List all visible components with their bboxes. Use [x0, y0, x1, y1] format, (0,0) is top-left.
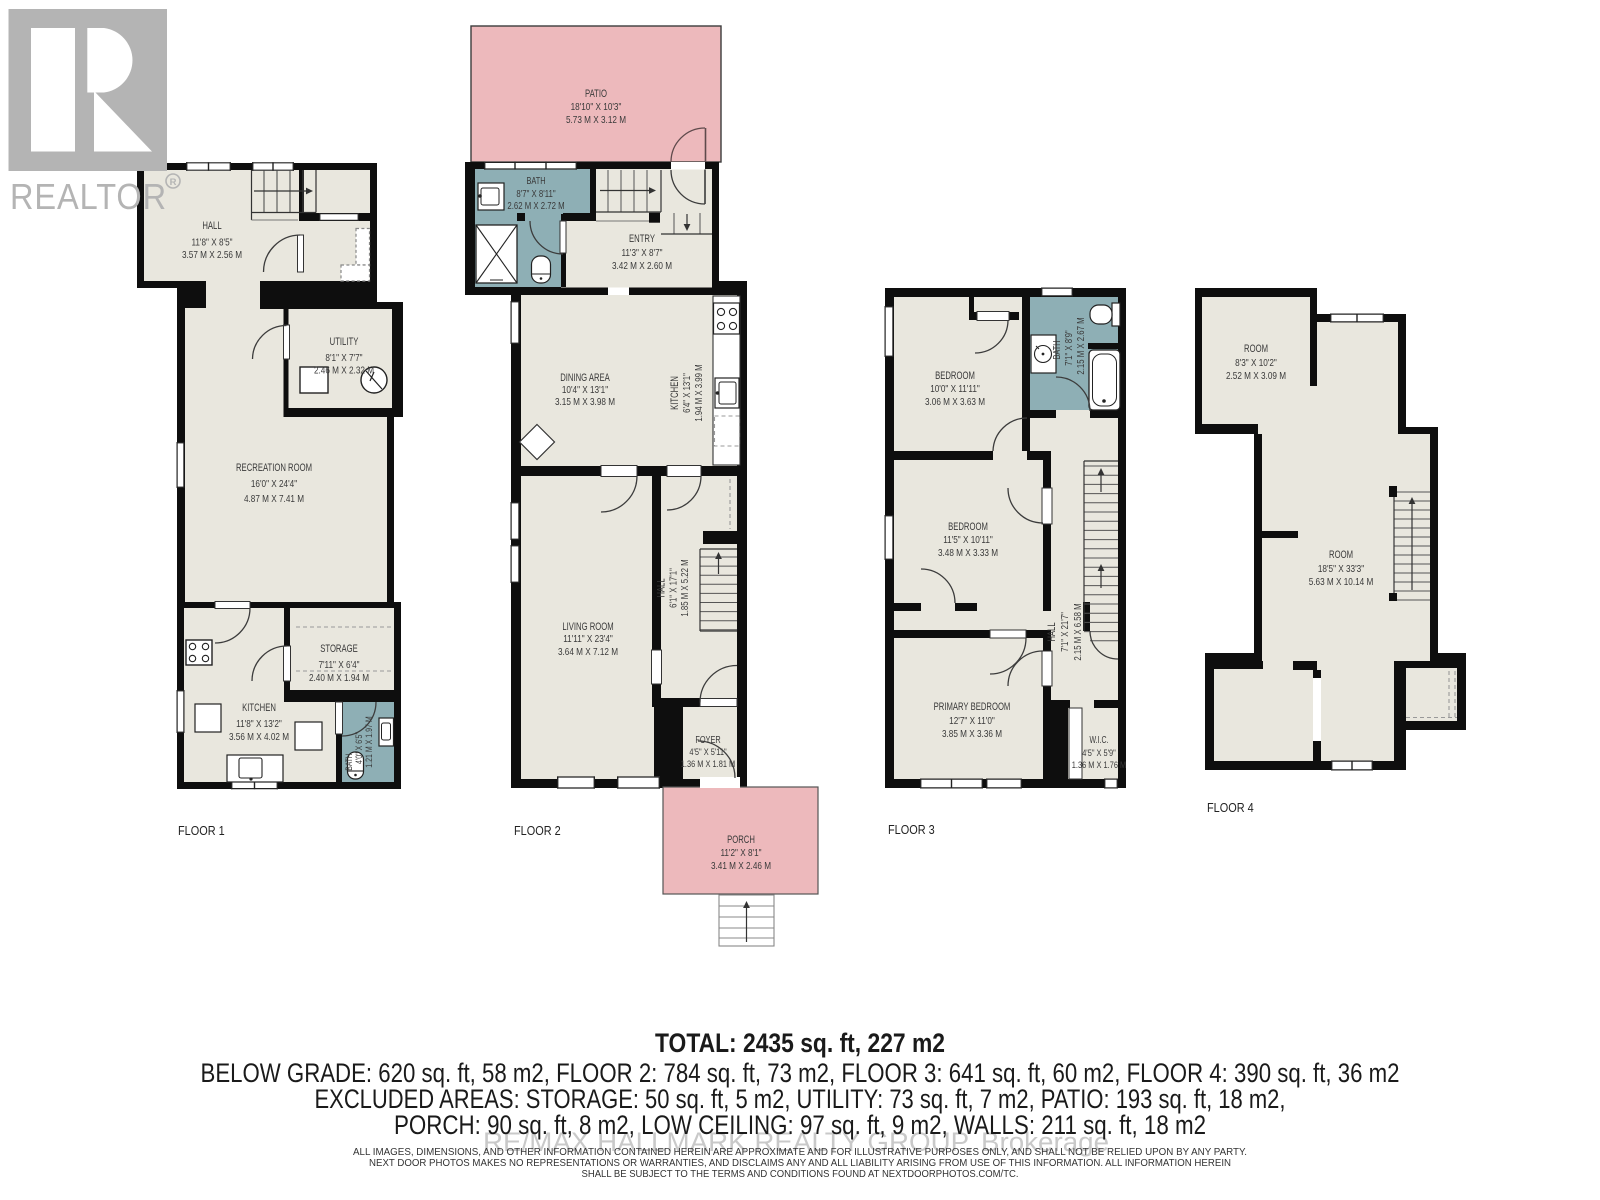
svg-text:11'8" X 8'5": 11'8" X 8'5" [191, 237, 232, 249]
svg-text:2.46 M X 2.32 M: 2.46 M X 2.32 M [314, 365, 374, 377]
svg-text:3.56 M X 4.02 M: 3.56 M X 4.02 M [229, 731, 289, 743]
svg-text:SHALL BE SUBJECT TO THE TERMS: SHALL BE SUBJECT TO THE TERMS AND CONDIT… [582, 1169, 1019, 1180]
svg-text:TOTAL: 2435 sq. ft, 227 m2: TOTAL: 2435 sq. ft, 227 m2 [655, 1028, 945, 1058]
svg-text:10'4" X 13'1": 10'4" X 13'1" [562, 384, 609, 396]
svg-text:1.94 M X 3.99 M: 1.94 M X 3.99 M [694, 364, 705, 421]
svg-text:KITCHEN: KITCHEN [242, 702, 276, 714]
svg-text:R: R [170, 177, 177, 188]
svg-text:5.63 M X 10.14 M: 5.63 M X 10.14 M [1309, 576, 1374, 588]
svg-text:BEDROOM: BEDROOM [935, 370, 975, 382]
svg-text:1.85 M X 5.22 M: 1.85 M X 5.22 M [680, 559, 691, 616]
svg-text:HALL: HALL [656, 578, 668, 597]
svg-text:4'0" X 6'5": 4'0" X 6'5" [354, 732, 364, 764]
svg-text:BEDROOM: BEDROOM [948, 521, 988, 533]
svg-text:ALL IMAGES, DIMENSIONS, AND OT: ALL IMAGES, DIMENSIONS, AND OTHER INFORM… [353, 1147, 1247, 1158]
svg-text:PORCH: 90 sq. ft, 8 m2, LOW CE: PORCH: 90 sq. ft, 8 m2, LOW CEILING: 97 … [394, 1110, 1206, 1140]
svg-text:3.64 M X 7.12 M: 3.64 M X 7.12 M [558, 646, 618, 658]
svg-text:STORAGE: STORAGE [320, 643, 358, 655]
svg-text:BATH: BATH [1051, 340, 1063, 359]
svg-text:PRIMARY BEDROOM: PRIMARY BEDROOM [934, 701, 1011, 713]
svg-text:NEXT DOOR PHOTOS MAKES NO REPR: NEXT DOOR PHOTOS MAKES NO REPRESENTATION… [369, 1158, 1231, 1169]
svg-text:7'1" X 8'9": 7'1" X 8'9" [1064, 330, 1075, 366]
svg-text:2.15 M X 2.67 M: 2.15 M X 2.67 M [1076, 317, 1087, 374]
svg-text:BATH: BATH [526, 175, 545, 187]
svg-text:18'5" X 33'3": 18'5" X 33'3" [1318, 563, 1365, 575]
svg-text:1.36 M X 1.76 M: 1.36 M X 1.76 M [1072, 760, 1126, 771]
svg-text:FLOOR 3: FLOOR 3 [888, 822, 935, 837]
svg-text:HALL: HALL [202, 220, 221, 232]
svg-text:2.40 M X 1.94 M: 2.40 M X 1.94 M [309, 672, 369, 684]
svg-text:2.15 M X 6.58 M: 2.15 M X 6.58 M [1073, 603, 1084, 660]
svg-text:4.87 M X 7.41 M: 4.87 M X 7.41 M [244, 493, 304, 505]
svg-text:DINING AREA: DINING AREA [560, 372, 610, 384]
svg-text:LIVING ROOM: LIVING ROOM [562, 621, 613, 633]
svg-text:3.48 M X 3.33 M: 3.48 M X 3.33 M [938, 547, 998, 559]
svg-text:7'11" X 6'4": 7'11" X 6'4" [318, 659, 359, 671]
svg-text:6'4" X 13'1": 6'4" X 13'1" [682, 373, 693, 413]
svg-text:5.73 M X 3.12 M: 5.73 M X 3.12 M [566, 114, 626, 126]
svg-text:FLOOR 2: FLOOR 2 [514, 823, 561, 838]
svg-text:3.57 M X 2.56 M: 3.57 M X 2.56 M [182, 249, 242, 261]
svg-text:1.36 M X 1.81 M: 1.36 M X 1.81 M [681, 759, 735, 770]
svg-text:2.62 M X 2.72 M: 2.62 M X 2.72 M [507, 201, 564, 212]
svg-text:10'0" X 11'11": 10'0" X 11'11" [930, 383, 980, 395]
svg-text:4'5" X 5'11": 4'5" X 5'11" [689, 747, 726, 758]
svg-text:FLOOR 1: FLOOR 1 [178, 823, 225, 838]
svg-text:KITCHEN: KITCHEN [669, 376, 681, 410]
svg-text:12'7" X 11'0": 12'7" X 11'0" [949, 715, 995, 727]
svg-text:11'5" X 10'11": 11'5" X 10'11" [943, 534, 993, 546]
svg-text:ROOM: ROOM [1329, 549, 1353, 561]
svg-text:6'1" X 17'1": 6'1" X 17'1" [669, 568, 680, 608]
svg-text:2.52 M X 3.09 M: 2.52 M X 3.09 M [1226, 370, 1286, 382]
svg-text:W.I.C.: W.I.C. [1089, 735, 1108, 746]
svg-text:11'8" X 13'2": 11'8" X 13'2" [236, 718, 282, 730]
svg-text:1.21 M X 1.97 M: 1.21 M X 1.97 M [364, 716, 374, 768]
svg-text:4'5" X 5'9": 4'5" X 5'9" [1082, 748, 1116, 759]
svg-text:3.15 M X 3.98 M: 3.15 M X 3.98 M [555, 396, 615, 408]
svg-text:PATIO: PATIO [585, 88, 607, 100]
svg-text:3.42 M X 2.60 M: 3.42 M X 2.60 M [612, 260, 672, 272]
svg-text:11'3" X 8'7": 11'3" X 8'7" [621, 247, 662, 259]
svg-text:RECREATION ROOM: RECREATION ROOM [236, 462, 312, 474]
svg-text:18'10" X 10'3": 18'10" X 10'3" [571, 101, 622, 113]
svg-text:FLOOR 4: FLOOR 4 [1207, 800, 1254, 815]
svg-text:ROOM: ROOM [1244, 343, 1268, 355]
svg-text:UTILITY: UTILITY [330, 336, 359, 348]
svg-text:HALL: HALL [1046, 622, 1058, 641]
svg-text:11'2" X 8'1": 11'2" X 8'1" [720, 847, 761, 859]
svg-text:16'0" X 24'4": 16'0" X 24'4" [251, 478, 298, 490]
svg-text:PORCH: PORCH [727, 834, 755, 846]
svg-text:FOYER: FOYER [695, 734, 721, 746]
svg-text:ENTRY: ENTRY [629, 233, 655, 245]
svg-text:3.06 M X 3.63 M: 3.06 M X 3.63 M [925, 396, 985, 408]
svg-text:3.41 M X 2.46 M: 3.41 M X 2.46 M [711, 860, 771, 872]
svg-text:REALTOR: REALTOR [10, 176, 167, 217]
svg-text:8'7" X 8'11": 8'7" X 8'11" [516, 189, 556, 200]
svg-text:7'1" X 21'7": 7'1" X 21'7" [1060, 612, 1071, 652]
svg-text:3.85 M X 3.36 M: 3.85 M X 3.36 M [942, 728, 1002, 740]
svg-text:8'3" X 10'2": 8'3" X 10'2" [1235, 357, 1277, 369]
svg-text:8'1" X 7'7": 8'1" X 7'7" [325, 352, 362, 364]
svg-text:11'11" X 23'4": 11'11" X 23'4" [563, 633, 613, 645]
